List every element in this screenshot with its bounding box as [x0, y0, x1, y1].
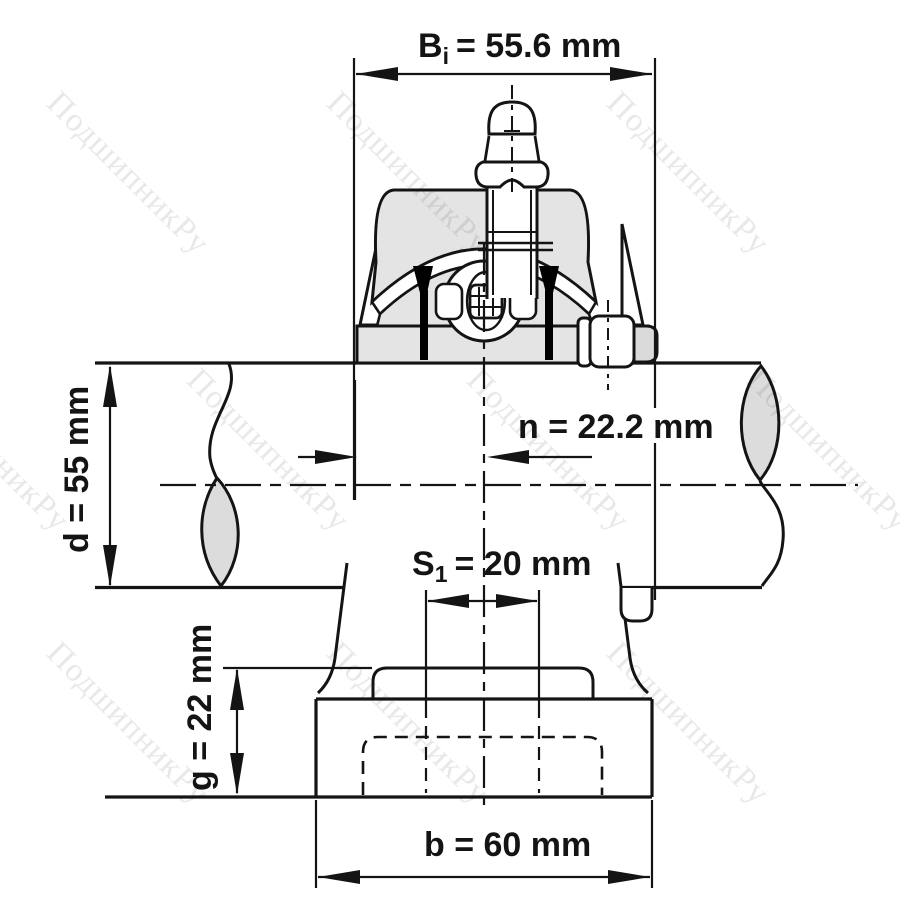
- seal-left-bar: [420, 290, 428, 360]
- grease-fitting: [476, 85, 548, 196]
- arrowhead: [608, 870, 650, 884]
- arrowhead: [356, 67, 398, 81]
- shaft-break-right-curve: [760, 481, 783, 586]
- set-screw-body: [590, 316, 634, 367]
- collar-flange: [634, 326, 657, 362]
- arrowhead: [103, 545, 117, 587]
- arrowhead: [318, 870, 360, 884]
- arrowhead: [610, 67, 652, 81]
- seal-right-bar: [545, 290, 553, 360]
- collar-lower-block: [621, 588, 652, 621]
- arrowhead: [230, 668, 244, 710]
- arrowhead: [103, 365, 117, 407]
- housing-arm-right: [622, 224, 643, 325]
- dim-d: [103, 365, 117, 587]
- arrowhead: [230, 753, 244, 795]
- label-b: b = 60 mm: [424, 826, 591, 864]
- inner-ring-left: [436, 284, 462, 319]
- bearing-drawing-canvas: Bi= 55.6 mm n = 22.2 mm d = 55 mm S1= 20…: [0, 0, 900, 900]
- bearing-dimension-drawing-page: { "title_context": "bearing unit dimensi…: [0, 0, 900, 900]
- label-n: n = 22.2 mm: [518, 408, 714, 446]
- label-Bi: Bi= 55.6 mm: [418, 27, 621, 69]
- label-g: g = 22 mm: [181, 624, 219, 791]
- label-d: d = 55 mm: [58, 386, 96, 553]
